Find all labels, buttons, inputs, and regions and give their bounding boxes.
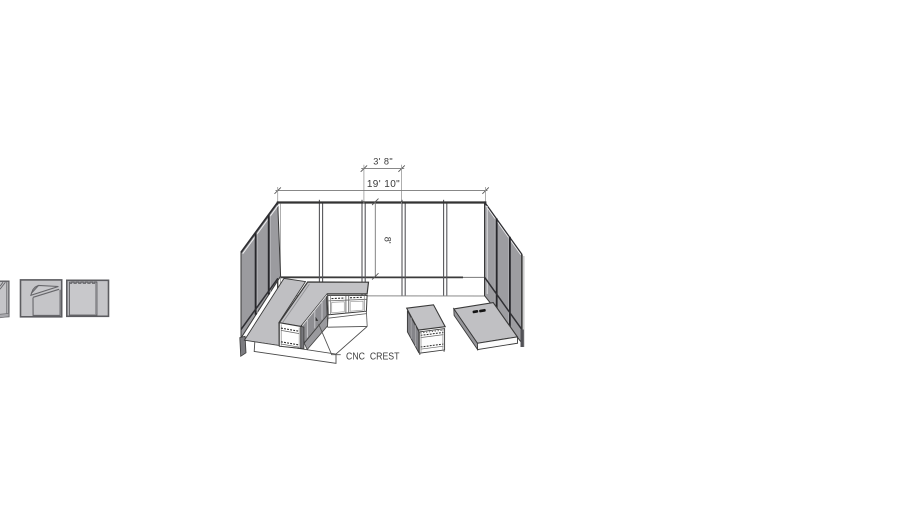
svg-text:19' 10": 19' 10" bbox=[367, 179, 400, 190]
svg-text:3' 8": 3' 8" bbox=[373, 157, 393, 167]
svg-text:CNC CREST: CNC CREST bbox=[346, 352, 400, 363]
svg-text:8': 8' bbox=[383, 237, 393, 244]
